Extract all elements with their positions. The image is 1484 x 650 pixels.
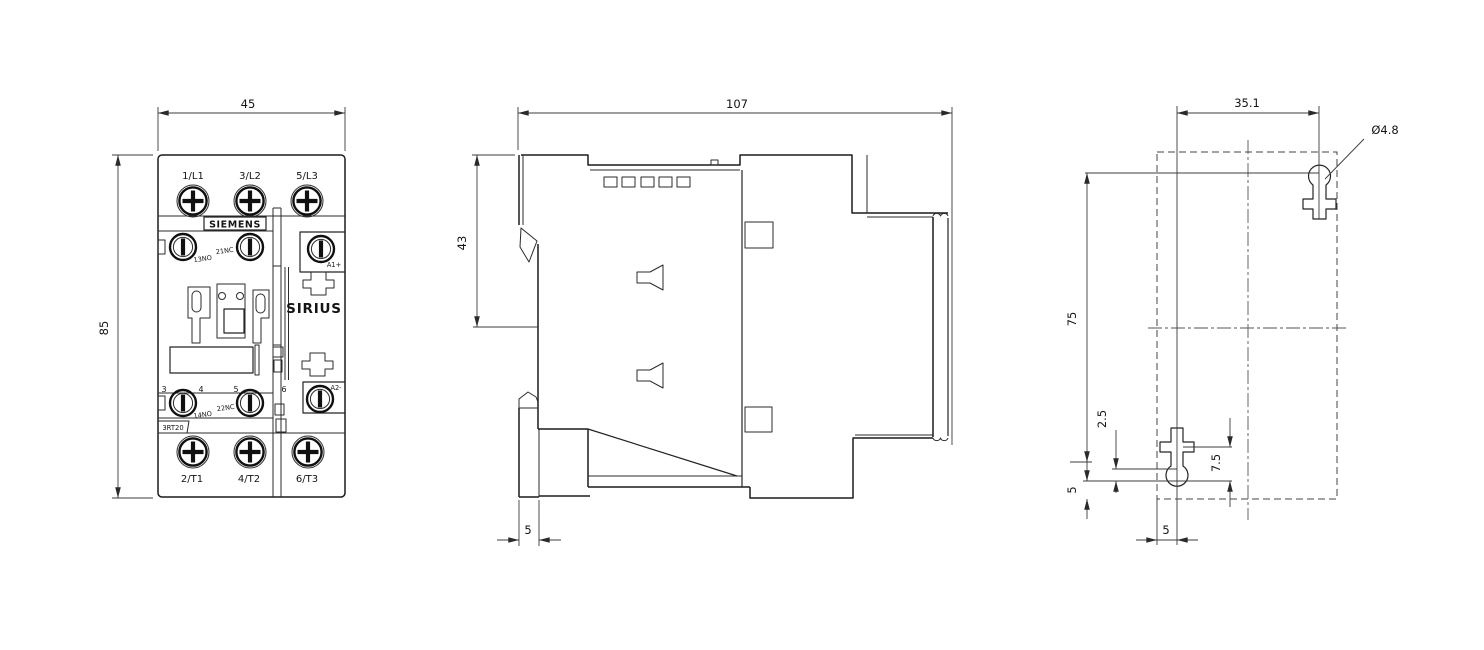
- sirius-label: SIRIUS: [286, 301, 342, 317]
- terminal-screw-1L1: [177, 185, 209, 217]
- din-claw: [520, 228, 537, 262]
- technical-drawing: 45 85 1/L1 3/L2 5/L3 SIEMENS: [0, 0, 1484, 650]
- pole-number-3: 3: [161, 385, 166, 394]
- terminal-label-4T2: 4/T2: [238, 474, 260, 485]
- dim-width: 45: [158, 97, 345, 151]
- terminal-screw-2T1: [177, 436, 209, 468]
- dim-height: 85: [97, 155, 153, 498]
- coil-screw-a2: [307, 386, 333, 412]
- terminal-screw-3L2: [234, 185, 266, 217]
- coil-label-a1: A1+: [327, 261, 341, 269]
- dim-offset-minor-label: 2.5: [1095, 410, 1109, 428]
- side-view: 107 43 5: [455, 97, 952, 546]
- pole-number-5: 5: [233, 385, 238, 394]
- pole-number-6: 6: [281, 385, 286, 394]
- dim-hole-spacing-v-label: 75: [1065, 312, 1079, 327]
- aux-label-21nc: 21NC: [215, 246, 234, 256]
- dim-offset-left: 5: [1136, 523, 1198, 540]
- dim-latch-travel: 5: [497, 500, 561, 546]
- dim-width-label: 45: [241, 97, 256, 111]
- dim-height-label: 85: [97, 321, 111, 336]
- dim-hole-spacing-h-label: 35.1: [1234, 96, 1260, 110]
- model-label: 3RT20: [162, 424, 183, 432]
- terminal-screw-4T2: [234, 436, 266, 468]
- terminal-label-2T1: 2/T1: [181, 474, 203, 485]
- aux-label-13no: 13NO: [193, 254, 212, 264]
- dim-offset-hole: 7.5: [1209, 418, 1230, 507]
- pole-number-4: 4: [198, 385, 203, 394]
- siemens-logo: SIEMENS: [204, 217, 266, 231]
- dim-offset-hole-label: 7.5: [1209, 454, 1223, 472]
- terminal-label-5L3: 5/L3: [296, 171, 318, 182]
- aux-label-14no: 14NO: [193, 410, 212, 420]
- aux-label-22nc: 22NC: [216, 403, 235, 413]
- drawing-canvas: 45 85 1/L1 3/L2 5/L3 SIEMENS: [0, 0, 1484, 650]
- dim-hole-spacing-v: 75: [1065, 173, 1087, 462]
- dim-depth-label: 107: [726, 97, 748, 111]
- coil-clamp-bottom: [302, 353, 333, 376]
- terminal-screw-6T3: [292, 436, 324, 468]
- dim-offset-minor: 2.5: [1095, 410, 1116, 493]
- siemens-logo-text: SIEMENS: [209, 220, 261, 231]
- coil-screw-a1: [308, 236, 334, 262]
- hole-diameter-callout: Ø4.8: [1325, 123, 1399, 179]
- aux-screw-22nc: [237, 390, 263, 416]
- dim-offset-bottom-label: 5: [1065, 486, 1079, 493]
- mounting-view: 35.1 Ø4.8 75 2.5 7.5 5: [1065, 96, 1399, 545]
- hole-diameter-label: Ø4.8: [1371, 123, 1398, 137]
- dim-top-section-label: 43: [455, 236, 469, 251]
- dim-offset-left-label: 5: [1162, 523, 1169, 537]
- terminal-label-6T3: 6/T3: [296, 474, 318, 485]
- coil-clamp-top: [303, 272, 334, 295]
- aux-screw-21nc: [237, 234, 263, 260]
- terminal-label-3L2: 3/L2: [239, 171, 261, 182]
- din-latch: [519, 392, 538, 408]
- contact-mechanism: [170, 284, 269, 375]
- clip-lower: [637, 363, 663, 388]
- dim-depth: 107: [518, 97, 952, 445]
- front-view: 45 85 1/L1 3/L2 5/L3 SIEMENS: [97, 97, 345, 498]
- terminal-screw-5L3: [291, 185, 323, 217]
- terminal-label-1L1: 1/L1: [182, 171, 204, 182]
- nameplate-window: [170, 347, 253, 373]
- clip-upper: [637, 265, 663, 290]
- dim-latch-travel-label: 5: [524, 523, 531, 537]
- dim-top-section: 43: [455, 155, 538, 327]
- dim-offset-bottom: 5: [1065, 462, 1087, 519]
- coil-label-a2: A2-: [330, 384, 342, 392]
- dim-hole-spacing-h: 35.1: [1177, 96, 1319, 113]
